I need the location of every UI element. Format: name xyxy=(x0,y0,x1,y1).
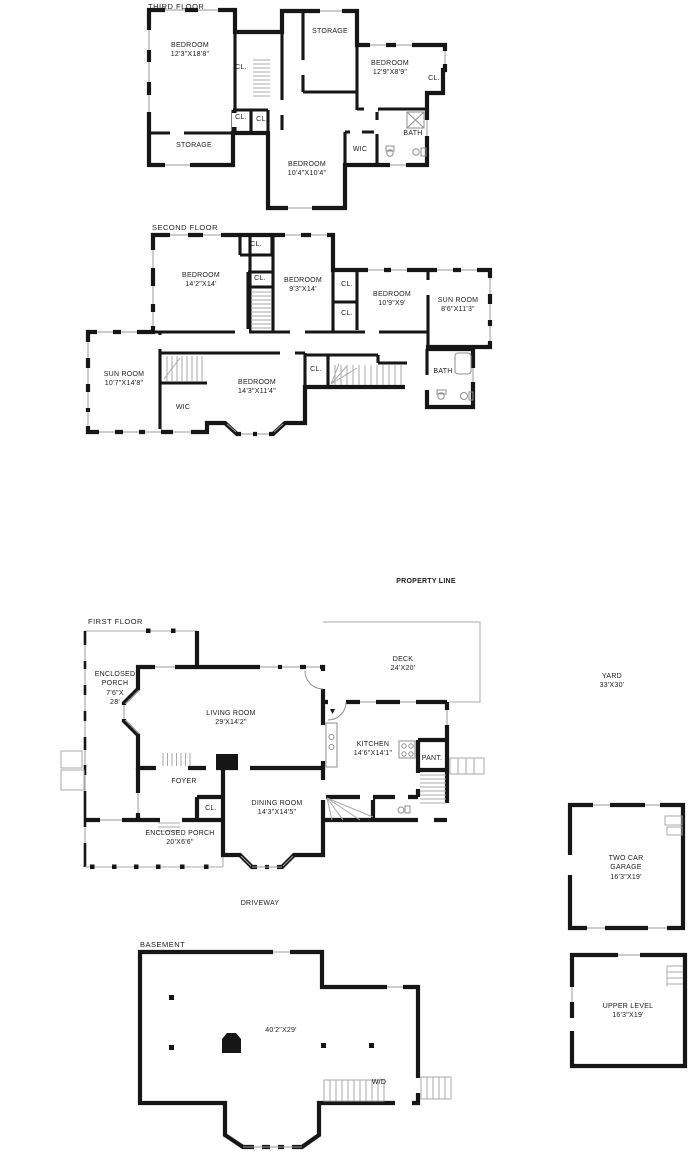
room-label-bedroom-n-2f: BEDROOM 9'3"X14' xyxy=(284,276,322,295)
second-floor-walls xyxy=(88,235,490,434)
room-label-closet-top-2f: CL. xyxy=(250,240,262,249)
room-name: KITCHEN xyxy=(354,740,392,749)
property-line-label: PROPERTY LINE xyxy=(396,577,456,586)
room-name: CL. xyxy=(256,115,268,124)
room-name: SUN ROOM xyxy=(104,370,145,379)
second-floor-stairs xyxy=(164,292,401,385)
room-name: CL. xyxy=(254,274,266,283)
room-name: GARAGE xyxy=(609,863,644,872)
third-floor-plan xyxy=(140,0,470,218)
room-label-living: LIVING ROOM 29'X14'2" xyxy=(206,709,255,728)
room-label-closet-hall-left-3f: CL. xyxy=(235,113,247,122)
room-name: BEDROOM xyxy=(373,290,411,299)
room-dims: 14'3"X14'5" xyxy=(252,808,303,817)
room-label-storage-bottom-3f: STORAGE xyxy=(176,141,212,150)
room-dims: 24'X20' xyxy=(391,664,416,673)
room-name: CL. xyxy=(341,280,353,289)
room-dims: 12'9"X8'9" xyxy=(371,68,409,77)
second-floor-title: SECOND FLOOR xyxy=(152,223,218,233)
room-name: PANT. xyxy=(422,754,443,763)
washer-dryer-label: W/D xyxy=(372,1078,386,1087)
room-label-foyer: FOYER xyxy=(171,777,196,786)
room-name: ENCLOSED PORCH xyxy=(145,829,214,838)
room-name: LIVING ROOM xyxy=(206,709,255,718)
garage-label: TWO CAR GARAGE 16'3"X19' xyxy=(609,854,644,882)
second-floor-openings xyxy=(88,235,490,434)
room-label-bath-3f: BATH xyxy=(403,129,422,138)
basement-openings xyxy=(243,952,418,1147)
room-label-bedroom-nw-2f: BEDROOM 14'2"X14' xyxy=(182,271,220,290)
room-name: CL. xyxy=(235,113,247,122)
room-label-closet-east-upper-2f: CL. xyxy=(341,280,353,289)
room-name: STORAGE xyxy=(176,141,212,150)
floor-plan-sheet: THIRD FLOOR BEDROOM 12'3"X18'8" STORAGE … xyxy=(0,0,694,1154)
room-name: SUN ROOM xyxy=(438,296,479,305)
room-name: WIC xyxy=(176,403,190,412)
room-name: TWO CAR xyxy=(609,854,644,863)
room-dims: 9'3"X14' xyxy=(284,285,322,294)
furnace xyxy=(222,1033,241,1053)
basement-plan xyxy=(130,935,490,1154)
deck-label: DECK 24'X20' xyxy=(391,655,416,674)
room-name: BEDROOM xyxy=(182,271,220,280)
room-dims: 16'3"X19' xyxy=(603,1011,654,1020)
third-floor-title: THIRD FLOOR xyxy=(148,2,204,12)
third-floor-stairs xyxy=(253,60,270,96)
basement-dims: 40'2"X29' xyxy=(265,1026,297,1035)
room-label-bedroom-ne-2f: BEDROOM 10'9"X9' xyxy=(373,290,411,309)
room-name: STORAGE xyxy=(312,27,348,36)
room-dims: 8'6"X11'3" xyxy=(438,305,479,314)
room-dims: 10'9"X9' xyxy=(373,299,411,308)
room-name: BEDROOM xyxy=(238,378,276,387)
room-label-bedroom-right-3f: BEDROOM 12'9"X8'9" xyxy=(371,59,409,78)
room-label-bedroom-bottom-3f: BEDROOM 10'4"X10'4" xyxy=(288,160,326,179)
room-label-bath-2f: BATH xyxy=(433,367,452,376)
room-dims: 29'X14'2" xyxy=(206,718,255,727)
room-label-sunroom-sw-2f: SUN ROOM 10'7"X14'8" xyxy=(104,370,145,389)
room-label-closet-stairs-2f: CL. xyxy=(254,274,266,283)
room-dims: 14'6"X14'1" xyxy=(354,749,392,758)
room-name: CL. xyxy=(341,309,353,318)
yard-label: YARD 33'X30' xyxy=(600,672,625,691)
room-label-closet-hall-top-3f: CL. xyxy=(235,63,247,72)
room-label-wic-2f: WIC xyxy=(176,403,190,412)
room-name: YARD xyxy=(600,672,625,681)
room-label-bedroom-left-3f: BEDROOM 12'3"X18'8" xyxy=(171,41,209,60)
room-name: FOYER xyxy=(171,777,196,786)
room-label-kitchen: KITCHEN 14'6"X14'1" xyxy=(354,740,392,759)
room-label-dining: DINING ROOM 14'3"X14'5" xyxy=(252,799,303,818)
room-name: WIC xyxy=(353,145,367,154)
room-dims: 16'3"X19' xyxy=(609,873,644,882)
driveway-label: DRIVEWAY xyxy=(241,899,280,908)
room-label-enclosed-porch-south: ENCLOSED PORCH 20'X6'6" xyxy=(145,829,214,848)
room-label-pantry: PANT. xyxy=(422,754,443,763)
room-dims: 10'7"X14'8" xyxy=(104,379,145,388)
room-name: CL. xyxy=(250,240,262,249)
room-label-closet-right-3f: CL. xyxy=(428,74,440,83)
room-name: BATH xyxy=(433,367,452,376)
room-dims: 12'3"X18'8" xyxy=(171,50,209,59)
room-dims: 10'4"X10'4" xyxy=(288,169,326,178)
room-dims: 33'X30' xyxy=(600,681,625,690)
room-label-closet-mid-2f: CL. xyxy=(310,365,322,374)
room-name: CL. xyxy=(310,365,322,374)
room-dims: 14'3"X11'4" xyxy=(238,387,276,396)
room-label-bedroom-s-2f: BEDROOM 14'3"X11'4" xyxy=(238,378,276,397)
room-label-closet-hall-right-3f: CL. xyxy=(256,115,268,124)
room-label-closet-east-lower-2f: CL. xyxy=(341,309,353,318)
room-dims: 20'X6'6" xyxy=(145,838,214,847)
room-label-closet-1f: CL. xyxy=(205,804,217,813)
first-floor-title: FIRST FLOOR xyxy=(88,617,143,627)
basement-columns xyxy=(169,995,374,1053)
upper-level-label: UPPER LEVEL 16'3"X19' xyxy=(603,1002,654,1021)
room-name: CL. xyxy=(428,74,440,83)
room-name: UPPER LEVEL xyxy=(603,1002,654,1011)
second-floor-bath-fixtures xyxy=(437,353,473,400)
room-name: BATH xyxy=(403,129,422,138)
room-name: ENCLOSED xyxy=(95,670,136,679)
room-name: DINING ROOM xyxy=(252,799,303,808)
room-name: BEDROOM xyxy=(371,59,409,68)
room-name: BEDROOM xyxy=(171,41,209,50)
basement-title: BASEMENT xyxy=(140,940,185,950)
room-name: BEDROOM xyxy=(288,160,326,169)
room-label-storage-top-3f: STORAGE xyxy=(312,27,348,36)
room-label-wic-3f: WIC xyxy=(353,145,367,154)
room-name: CL. xyxy=(235,63,247,72)
room-name: BEDROOM xyxy=(284,276,322,285)
basement-stairs xyxy=(324,1077,451,1101)
room-name: DECK xyxy=(391,655,416,664)
second-floor-plan xyxy=(85,220,505,445)
room-label-enclosed-porch-west: ENCLOSED PORCH 7'6"X 28' xyxy=(95,670,136,708)
basement-walls xyxy=(140,952,418,1147)
room-name: PORCH xyxy=(95,679,136,688)
room-name: CL. xyxy=(205,804,217,813)
room-dims: 7'6"X xyxy=(95,689,136,698)
room-label-sunroom-ne-2f: SUN ROOM 8'6"X11'3" xyxy=(438,296,479,315)
room-dims: 28' xyxy=(95,698,136,707)
room-dims: 14'2"X14' xyxy=(182,280,220,289)
